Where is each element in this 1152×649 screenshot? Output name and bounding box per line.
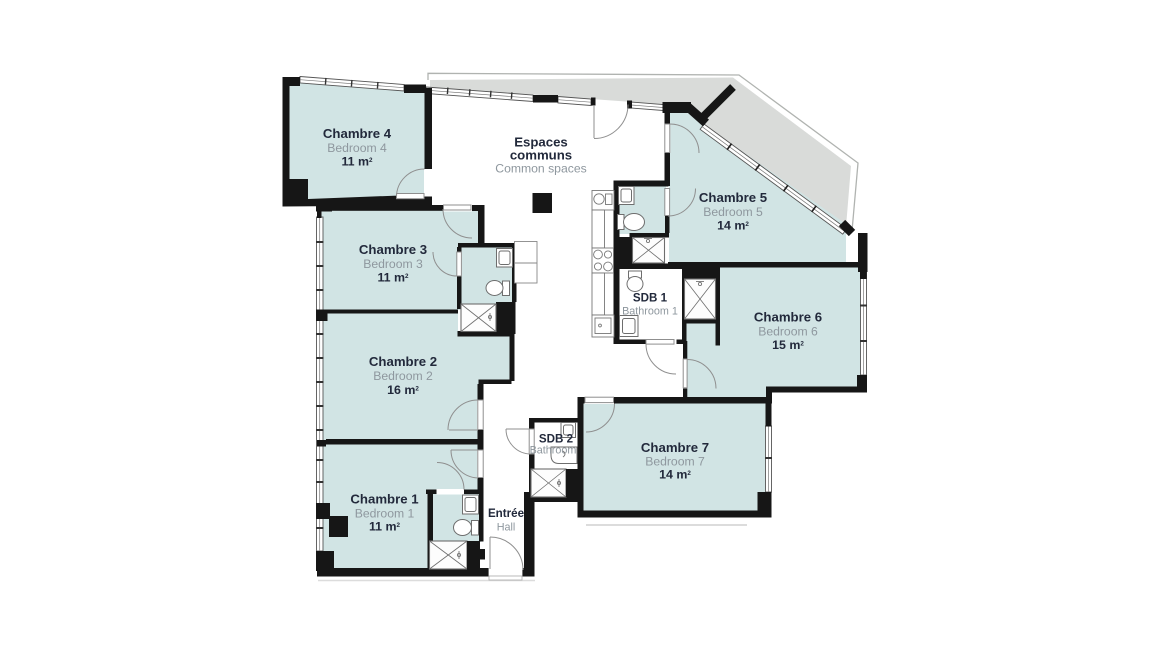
svg-text:Entrée: Entrée [488,507,525,520]
svg-text:Chambre 4: Chambre 4 [323,126,392,141]
svg-text:14 m2: 14 m2 [717,219,749,233]
svg-text:Bathroom 1: Bathroom 1 [622,306,678,318]
svg-text:14 m2: 14 m2 [659,468,691,482]
svg-text:Chambre 6: Chambre 6 [754,310,822,325]
svg-text:communs: communs [510,148,572,163]
svg-text:11 m2: 11 m2 [369,520,401,534]
svg-text:Bedroom 5: Bedroom 5 [703,205,763,219]
svg-text:Hall: Hall [497,522,516,534]
svg-text:Chambre 7: Chambre 7 [641,440,709,455]
svg-text:Common spaces: Common spaces [495,162,586,176]
svg-text:16 m2: 16 m2 [387,383,419,397]
svg-text:15 m2: 15 m2 [772,338,804,352]
svg-text:Bedroom 3: Bedroom 3 [363,257,423,271]
svg-text:11 m2: 11 m2 [341,155,373,169]
svg-text:Chambre 2: Chambre 2 [369,354,437,369]
svg-text:SDB 1: SDB 1 [633,292,668,305]
svg-text:Chambre 5: Chambre 5 [699,190,767,205]
svg-text:Chambre 1: Chambre 1 [350,492,418,507]
svg-text:11 m2: 11 m2 [377,271,409,285]
svg-text:Bedroom 6: Bedroom 6 [758,325,818,339]
svg-text:Bedroom 2: Bedroom 2 [373,369,433,383]
svg-text:Bedroom 7: Bedroom 7 [645,455,705,469]
svg-text:Bathroom: Bathroom [530,445,577,457]
svg-text:Bedroom 4: Bedroom 4 [327,141,387,155]
svg-text:Bedroom 1: Bedroom 1 [355,507,415,521]
svg-text:Chambre 3: Chambre 3 [359,242,427,257]
